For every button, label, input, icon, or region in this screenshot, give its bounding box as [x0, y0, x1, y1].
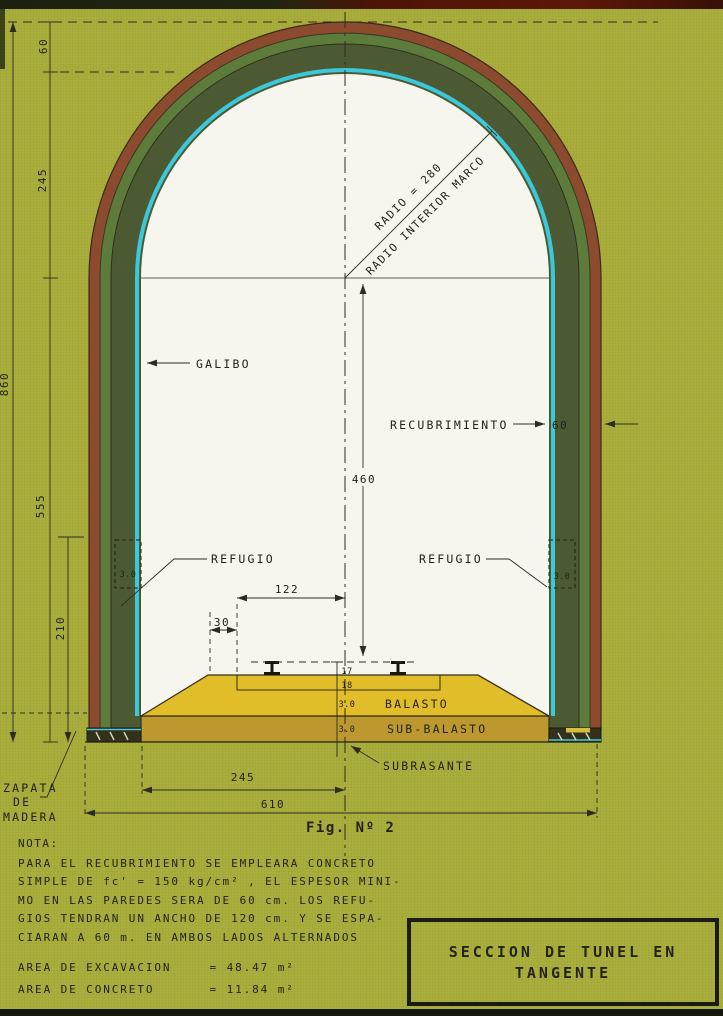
recubrimiento-label: RECUBRIMIENTO: [390, 418, 509, 432]
area-values: AREA DE EXCAVACION = 48.47 m² AREA DE CO…: [18, 957, 418, 1001]
dim-210: 210: [54, 616, 67, 640]
zapata-label-1: ZAPATA: [3, 781, 58, 795]
note-line: MO EN LAS PAREDES SERA DE 60 cm. LOS REF…: [18, 892, 418, 911]
note-line: SIMPLE DE fc' = 150 kg/cm² , EL ESPESOR …: [18, 873, 418, 892]
title-line-1: SECCION DE TUNEL EN: [449, 943, 678, 961]
subrasante-label: SUBRASANTE: [383, 759, 474, 773]
note-line: CIARAN A 60 m. EN AMBOS LADOS ALTERNADOS: [18, 929, 418, 948]
right-footing-pad: [566, 728, 590, 733]
concrete-area-label: AREA DE CONCRETO: [18, 979, 201, 1001]
dim-17: 17: [341, 667, 352, 677]
dim-460: 460: [352, 473, 376, 486]
excavation-area-label: AREA DE EXCAVACION: [18, 957, 201, 979]
zapata-label-2: DE: [13, 795, 31, 809]
balasto-label: BALASTO: [385, 697, 449, 711]
dim-245-arch: 245: [36, 168, 49, 192]
note-line: PARA EL RECUBRIMIENTO SE EMPLEARA CONCRE…: [18, 855, 418, 874]
bottom-dimensions: [85, 744, 597, 818]
tunnel-drawing-sheet: 3.0 3.0 RADIO = 280 RADIO INTERIOR MARCO: [0, 0, 723, 1016]
refugio-left-label: REFUGIO: [211, 552, 275, 566]
note-heading: NOTA:: [18, 835, 418, 854]
dim-wall-60: 60: [552, 419, 568, 432]
dim-30-subbalasto: 3.0: [339, 725, 356, 735]
dim-60-top: 60: [37, 38, 50, 54]
left-niche-depth: 3.0: [120, 570, 137, 580]
concrete-area-row: AREA DE CONCRETO = 11.84 m²: [18, 979, 418, 1001]
right-niche-depth: 3.0: [554, 572, 571, 582]
note-block: NOTA: PARA EL RECUBRIMIENTO SE EMPLEARA …: [18, 835, 418, 1001]
title-box: SECCION DE TUNEL EN TANGENTE: [407, 918, 719, 1006]
excavation-area-value: = 48.47 m²: [210, 961, 295, 974]
left-dimensions: [13, 22, 84, 742]
dim-30-balasto: 3.0: [339, 700, 356, 710]
galibo-label: GALIBO: [196, 357, 251, 371]
dim-245-base: 245: [231, 771, 255, 784]
sub-balasto-label: SUB-BALASTO: [387, 722, 487, 736]
dim-610: 610: [261, 798, 285, 811]
dim-555: 555: [34, 494, 47, 518]
title-line-2: TANGENTE: [515, 964, 611, 982]
figure-caption: Fig. Nº 2: [306, 820, 395, 836]
excavation-area-row: AREA DE EXCAVACION = 48.47 m²: [18, 957, 418, 979]
dim-122: 122: [275, 583, 299, 596]
subrasante-leader: [351, 746, 379, 763]
dim-18: 18: [341, 681, 352, 691]
zapata-label-3: MADERA: [3, 810, 58, 824]
concrete-area-value: = 11.84 m²: [210, 983, 295, 996]
dim-860: 860: [0, 372, 11, 396]
refugio-right-label: REFUGIO: [419, 552, 483, 566]
dim-30: 30: [214, 616, 230, 629]
note-line: GIOS TENDRAN UN ANCHO DE 120 cm. Y SE ES…: [18, 910, 418, 929]
